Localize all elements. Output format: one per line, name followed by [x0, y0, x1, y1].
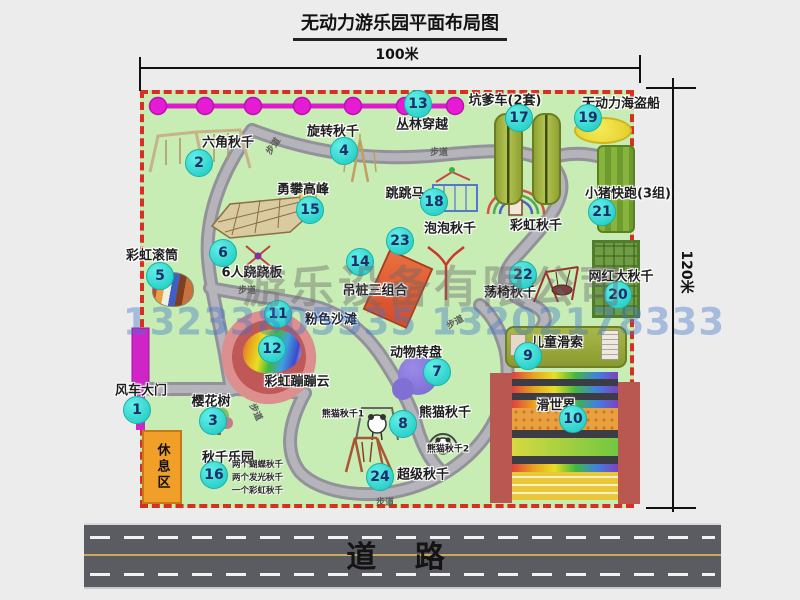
- item-sublabel-panda-swing-2: 熊猫秋千2: [427, 442, 469, 455]
- rest-area-label: 休息区: [153, 443, 172, 491]
- slide-stripe: [512, 372, 618, 379]
- road-strip: 道 路: [84, 523, 721, 589]
- height-dim-tick-bottom: [646, 507, 696, 509]
- item-label-rainbow-roller: 彩虹滚筒: [126, 245, 178, 264]
- page-title: 无动力游乐园平面布局图: [293, 9, 507, 41]
- badge-3: 3: [199, 407, 227, 435]
- item-label-rotating-swing: 旋转秋千: [307, 121, 359, 140]
- animal-turntable-small: [392, 378, 414, 400]
- badge-15: 15: [296, 196, 324, 224]
- item-label-bubble-swing: 泡泡秋千: [424, 218, 476, 237]
- width-dim-tick-left: [139, 57, 141, 91]
- width-dimension-label: 100米: [375, 44, 418, 64]
- swing-park-note-1: 两个蝴蝶秋千: [232, 458, 283, 470]
- slide-stripe: [512, 464, 618, 472]
- item-label-kengdie-car: 坑爹车(2套): [469, 90, 542, 109]
- slide-stripe: [512, 430, 618, 438]
- badge-7: 7: [423, 358, 451, 386]
- item-label-rainbow-swing: 彩虹秋千: [510, 215, 562, 234]
- badge-10: 10: [559, 405, 587, 433]
- swing-park-note-3: 一个彩虹秋千: [232, 484, 283, 496]
- item-sublabel-panda-swing-1: 熊猫秋千1: [322, 407, 364, 420]
- slide-wave-band: [512, 472, 618, 500]
- item-label-hexagon-swing: 六角秋千: [202, 132, 254, 151]
- slide-stripe: [512, 379, 618, 386]
- item-label-jump-horse: 跳跳马: [385, 183, 424, 202]
- road-label: 道 路: [346, 532, 458, 576]
- width-dim-tick-right: [639, 55, 641, 83]
- badge-2: 2: [185, 149, 213, 177]
- slide-green-band: [512, 438, 618, 456]
- badge-4: 4: [330, 137, 358, 165]
- badge-8: 8: [389, 410, 417, 438]
- badge-18: 18: [420, 188, 448, 216]
- badge-16: 16: [200, 461, 228, 489]
- item-label-super-swing: 超级秋千: [397, 464, 449, 483]
- badge-9: 9: [514, 342, 542, 370]
- swing-park-note-2: 两个发光秋千: [232, 471, 283, 483]
- slide-world-area: [490, 368, 640, 505]
- item-label-panda-swing: 熊猫秋千: [419, 402, 471, 421]
- badge-6: 6: [209, 239, 237, 267]
- rest-area: 休息区: [142, 430, 182, 504]
- kengdie-car-track-2: [532, 113, 561, 205]
- badge-5: 5: [146, 262, 174, 290]
- badge-21: 21: [588, 198, 616, 226]
- item-label-rainbow-cloud: 彩虹蹦蹦云: [264, 371, 329, 390]
- height-dimension-line: [672, 78, 674, 512]
- slide-world-left-wall: [490, 373, 512, 503]
- park-layout-page: { "title": "无动力游乐园平面布局图", "dimensions": …: [0, 0, 800, 600]
- height-dim-tick-top: [646, 87, 696, 89]
- width-dimension-line: [140, 67, 640, 69]
- badge-19: 19: [574, 104, 602, 132]
- badge-13: 13: [404, 90, 432, 118]
- badge-24: 24: [366, 463, 394, 491]
- item-label-climbing-peak: 勇攀高峰: [277, 179, 329, 198]
- slide-stripe: [512, 386, 618, 393]
- slide-world-right-wall: [618, 382, 640, 504]
- height-dimension-label: 120米: [677, 250, 697, 293]
- badge-1: 1: [123, 396, 151, 424]
- slide-stripe: [512, 456, 618, 464]
- badge-17: 17: [505, 104, 533, 132]
- watermark-phone: 13233805535 13202178333: [123, 301, 725, 344]
